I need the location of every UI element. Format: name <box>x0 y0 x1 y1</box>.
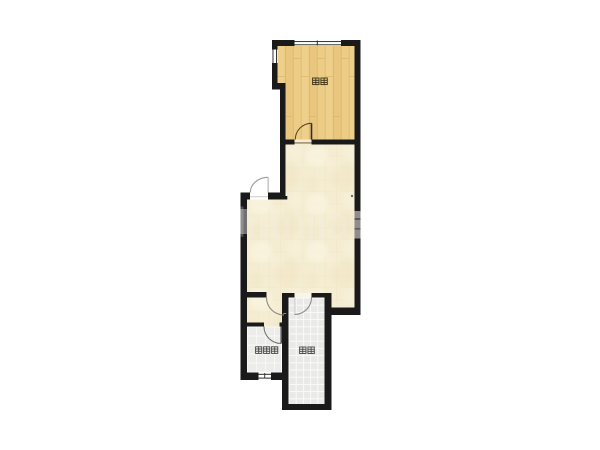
svg-text:lianjia: lianjia <box>237 199 351 246</box>
